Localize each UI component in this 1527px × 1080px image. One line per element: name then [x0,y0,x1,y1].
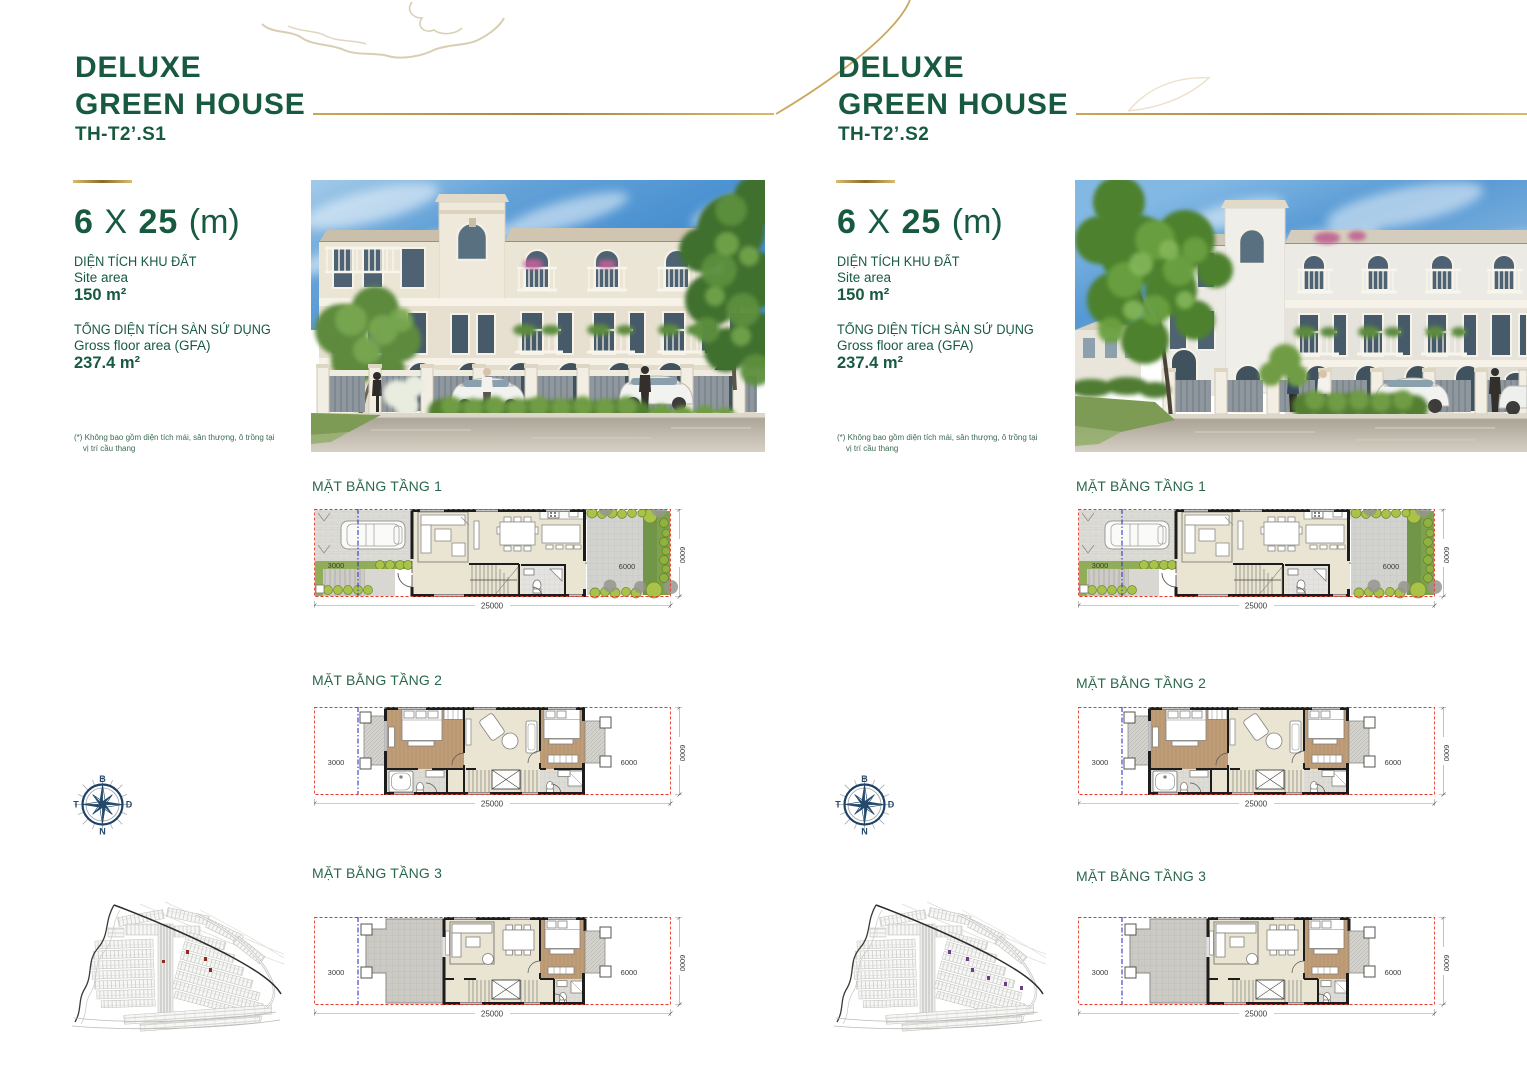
svg-text:D: D [888,800,895,810]
svg-text:25000: 25000 [1245,602,1268,611]
svg-text:B: B [99,774,106,784]
svg-text:6000: 6000 [1385,758,1402,767]
svg-text:B: B [861,774,868,784]
svg-text:25000: 25000 [481,602,504,611]
svg-text:N: N [99,827,106,836]
svg-text:25000: 25000 [481,800,504,809]
svg-text:D: D [126,800,133,810]
svg-text:6000: 6000 [1442,547,1451,564]
svg-text:3000: 3000 [328,561,345,570]
svg-text:6000: 6000 [621,758,638,767]
svg-text:6000: 6000 [1383,562,1400,571]
svg-text:3000: 3000 [328,758,345,767]
svg-text:25000: 25000 [1245,1010,1268,1019]
svg-text:6000: 6000 [1385,968,1402,977]
svg-text:3000: 3000 [1092,561,1109,570]
svg-text:6000: 6000 [619,562,636,571]
svg-text:3000: 3000 [1092,758,1109,767]
svg-text:6000: 6000 [1442,745,1451,762]
svg-text:6000: 6000 [678,955,687,972]
svg-text:T: T [835,800,841,810]
svg-text:25000: 25000 [481,1010,504,1019]
svg-text:6000: 6000 [678,745,687,762]
svg-text:6000: 6000 [621,968,638,977]
svg-text:T: T [73,800,79,810]
svg-text:6000: 6000 [678,547,687,564]
svg-text:3000: 3000 [1092,968,1109,977]
svg-text:3000: 3000 [328,968,345,977]
svg-text:6000: 6000 [1442,955,1451,972]
svg-text:25000: 25000 [1245,800,1268,809]
svg-text:N: N [861,827,868,836]
